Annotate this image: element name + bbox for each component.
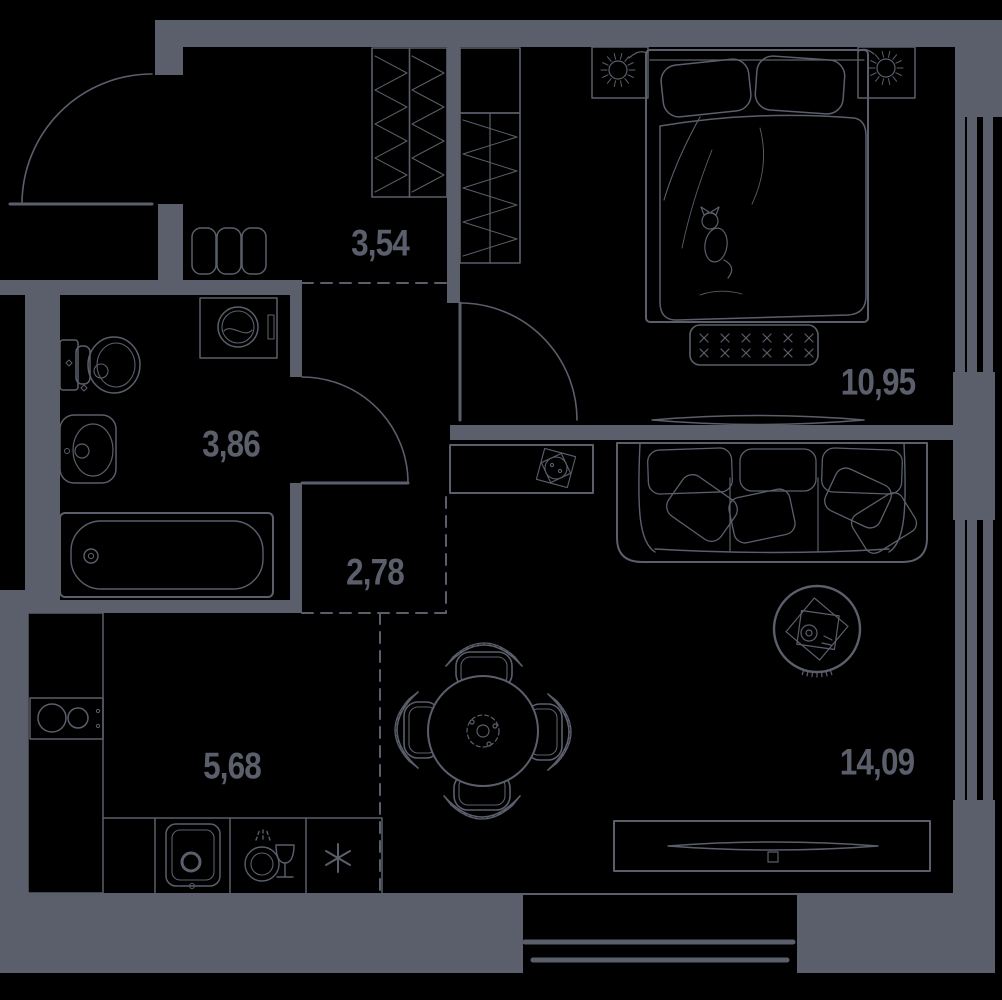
pillow	[754, 55, 846, 115]
nightstand-icon	[592, 47, 648, 98]
room-area-label-hallway-upper: 3,54	[351, 225, 409, 262]
fridge-icon	[326, 844, 350, 872]
dishwasher-icon	[245, 827, 294, 881]
wardrobe-icon	[460, 48, 520, 263]
shoe-cabinet-icon	[192, 228, 266, 274]
entrance-door-icon	[10, 74, 152, 204]
lamp-icon	[858, 49, 903, 84]
wall-bath-top	[0, 280, 302, 295]
toilet-icon	[60, 337, 140, 393]
wall-bottom-left	[0, 893, 523, 973]
floor-plan-canvas	[0, 0, 1002, 1000]
tv-console-icon	[614, 821, 930, 871]
wall-hall-bedroom	[447, 47, 460, 303]
washbasin-icon	[60, 415, 116, 483]
stove-icon	[30, 698, 103, 739]
room-area-label-bedroom: 10,95	[841, 364, 915, 401]
wall-bath-left	[25, 295, 60, 601]
lamp-icon	[601, 52, 648, 87]
wall-bedroom-living-divider	[450, 425, 955, 440]
kitchen-sink-icon	[166, 824, 220, 889]
coffee-tray-icon	[786, 598, 848, 660]
dining-table-icon	[395, 643, 571, 819]
nightstand-icon	[858, 47, 915, 98]
bathtub-icon	[60, 513, 273, 597]
room-area-label-kitchen: 5,68	[203, 748, 261, 785]
rug-icon	[774, 586, 860, 677]
wall-right-top-block	[955, 20, 1002, 117]
wall-bath-right-upper	[290, 283, 302, 377]
washing-machine-icon	[200, 298, 277, 358]
wall-entry-stub	[155, 47, 183, 75]
window-icon	[955, 117, 993, 372]
sofa-icon	[617, 443, 927, 562]
walls-layer	[0, 20, 1002, 973]
window-icon	[955, 520, 993, 800]
wall-bath-bottom	[28, 600, 297, 613]
floor-plan: 3,54 3,86 2,78 5,68 10,95 14,09	[0, 0, 1002, 1000]
wall-top	[155, 20, 1002, 47]
dresser-icon	[450, 445, 593, 493]
bench-icon	[690, 325, 818, 365]
tv-icon	[668, 842, 878, 862]
bed-icon	[646, 50, 868, 322]
wall-hall-stub	[158, 204, 183, 283]
wall-right-bottom-block	[953, 800, 995, 893]
bedroom-door-icon	[460, 303, 577, 420]
pillow	[660, 58, 753, 119]
balcony-icon	[523, 894, 797, 960]
room-area-label-hallway-lower: 2,78	[346, 554, 404, 591]
wardrobe-icon	[372, 48, 447, 197]
wall-right-mid-block	[953, 372, 995, 520]
room-area-label-living-room: 14,09	[840, 744, 914, 781]
plant-icon	[536, 448, 575, 487]
cat-icon	[701, 207, 732, 278]
wall-kitchen-left	[0, 590, 28, 893]
wall-bath-right-lower	[290, 483, 302, 613]
room-area-label-bathroom: 3,86	[202, 426, 260, 463]
bathroom-door-icon	[302, 377, 408, 483]
wall-bottom-right	[797, 893, 995, 973]
